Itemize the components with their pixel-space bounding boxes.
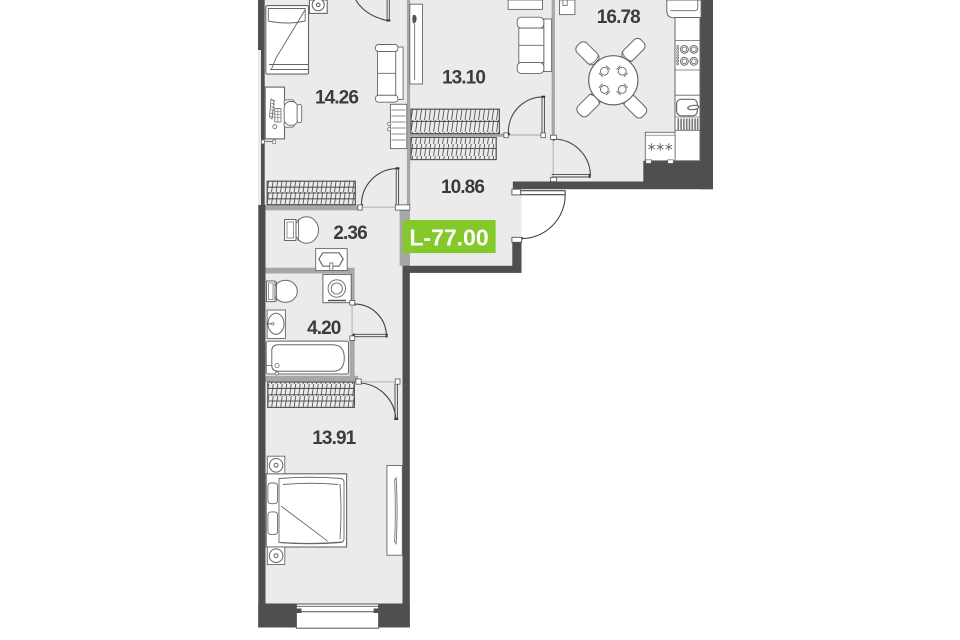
svg-text:13.91: 13.91 xyxy=(312,428,356,449)
svg-text:16.78: 16.78 xyxy=(597,7,640,28)
svg-text:L-77.00: L-77.00 xyxy=(409,225,488,251)
svg-text:10.86: 10.86 xyxy=(441,177,484,198)
svg-text:2.36: 2.36 xyxy=(333,223,367,244)
svg-text:4.20: 4.20 xyxy=(307,318,341,339)
svg-text:13.10: 13.10 xyxy=(442,67,485,88)
svg-text:14.26: 14.26 xyxy=(315,87,358,108)
